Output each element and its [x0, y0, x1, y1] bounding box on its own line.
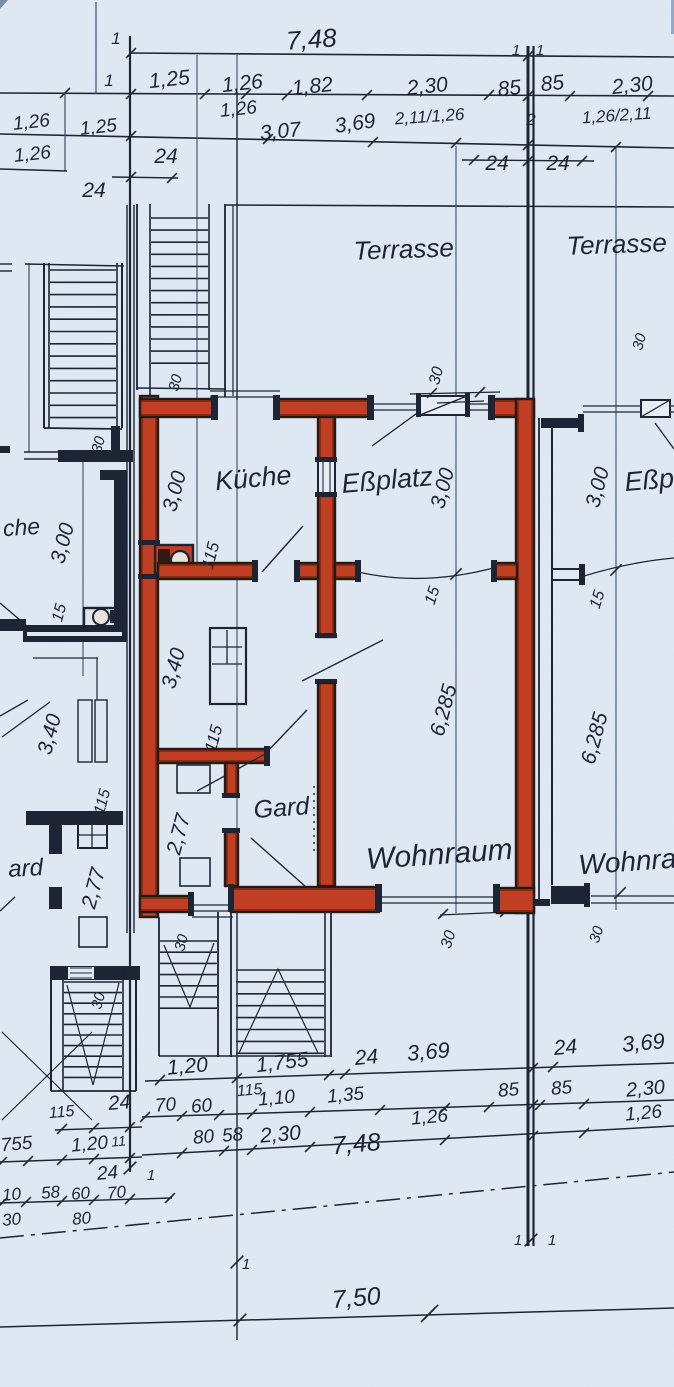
svg-text:58: 58 [40, 1182, 61, 1203]
svg-text:che: che [2, 513, 41, 542]
svg-text:70: 70 [154, 1094, 177, 1117]
svg-text:24: 24 [353, 1045, 379, 1070]
svg-text:1,35: 1,35 [326, 1083, 365, 1107]
svg-text:1,82: 1,82 [291, 73, 334, 100]
svg-text:1,26: 1,26 [219, 97, 258, 122]
svg-text:3,69: 3,69 [621, 1028, 666, 1057]
svg-text:85: 85 [497, 76, 523, 101]
svg-text:1: 1 [514, 1232, 522, 1249]
svg-text:70: 70 [106, 1182, 127, 1203]
svg-text:7,48: 7,48 [285, 22, 338, 55]
svg-text:1,26: 1,26 [12, 110, 51, 135]
svg-text:1,20: 1,20 [70, 1132, 109, 1156]
svg-text:Terrasse: Terrasse [566, 227, 667, 260]
svg-text:2,30: 2,30 [610, 72, 654, 99]
svg-text:24: 24 [484, 152, 508, 175]
svg-text:Terrasse: Terrasse [353, 232, 454, 265]
svg-text:58: 58 [221, 1124, 244, 1147]
svg-text:1,25: 1,25 [79, 115, 118, 140]
svg-text:1,26: 1,26 [221, 70, 264, 97]
svg-text:1: 1 [536, 42, 544, 59]
svg-text:115: 115 [48, 1103, 75, 1122]
svg-text:1: 1 [104, 71, 113, 90]
svg-text:1,10: 1,10 [257, 1086, 296, 1110]
svg-text:60: 60 [190, 1095, 213, 1118]
svg-text:3,07: 3,07 [259, 118, 303, 145]
svg-text:1,26: 1,26 [13, 142, 52, 167]
svg-text:1,26: 1,26 [624, 1101, 663, 1125]
svg-text:11: 11 [111, 1132, 127, 1149]
svg-text:1: 1 [548, 1232, 556, 1249]
svg-text:1: 1 [242, 1256, 250, 1273]
svg-text:3,69: 3,69 [406, 1037, 451, 1066]
svg-text:24: 24 [153, 145, 177, 168]
svg-text:24: 24 [106, 1091, 131, 1115]
svg-text:24: 24 [95, 1162, 119, 1185]
svg-text:85: 85 [550, 1077, 573, 1100]
svg-text:24: 24 [81, 179, 105, 202]
svg-text:24: 24 [545, 152, 569, 175]
svg-text:30: 30 [1, 1209, 22, 1230]
svg-text:2,30: 2,30 [624, 1076, 666, 1101]
svg-text:2,30: 2,30 [405, 73, 449, 100]
svg-text:80: 80 [192, 1126, 215, 1149]
svg-text:755: 755 [0, 1133, 34, 1157]
svg-text:1: 1 [147, 1167, 155, 1184]
svg-text:1: 1 [512, 42, 520, 59]
svg-text:ard: ard [8, 854, 45, 883]
svg-text:85: 85 [540, 71, 566, 96]
svg-text:1,26: 1,26 [410, 1105, 449, 1129]
svg-text:7,50: 7,50 [331, 1282, 382, 1314]
svg-text:Wohnra: Wohnra [577, 843, 674, 881]
svg-text:Eßp: Eßp [623, 463, 674, 497]
svg-text:60: 60 [70, 1183, 91, 1204]
svg-text:85: 85 [497, 1079, 520, 1102]
svg-text:Gard: Gard [253, 792, 311, 824]
svg-text:7,48: 7,48 [331, 1128, 382, 1160]
svg-text:80: 80 [71, 1208, 92, 1229]
svg-text:2,30: 2,30 [258, 1121, 302, 1148]
svg-text:1,20: 1,20 [166, 1053, 209, 1080]
svg-text:10: 10 [1, 1184, 22, 1205]
svg-text:24: 24 [552, 1035, 578, 1060]
svg-text:1: 1 [111, 29, 120, 48]
svg-text:1,25: 1,25 [148, 66, 191, 93]
